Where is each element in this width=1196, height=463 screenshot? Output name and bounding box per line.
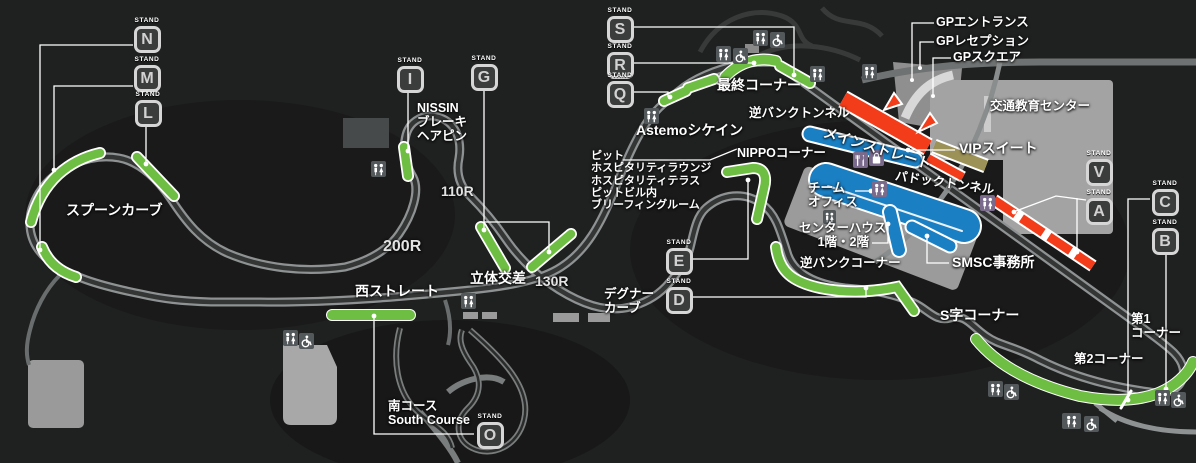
stand-badge-s[interactable]: STANDS [603,7,637,43]
wheelchair-icon [1004,384,1019,400]
toilet-icon [1062,413,1081,429]
toilet-icon [1155,390,1170,406]
building-small-3 [463,312,478,319]
label-traffic-education-center: 交通教育センター [990,99,1090,113]
parking-southwest [28,360,84,428]
label-pit-facilities: ピット ホスピタリティラウンジ ホスピタリティテラス ピットビル内 ブリーフィン… [591,150,711,212]
wheelchair-icon [299,333,314,349]
building-small-1 [553,313,579,322]
building-west [343,118,389,148]
stand-badge-d[interactable]: STANDD [662,278,696,314]
label-s-curves: S字コーナー [940,308,1019,324]
stand-badge-q[interactable]: STANDQ [603,72,637,108]
toilet-icon [980,195,995,211]
label-reverse-bank-corner: 逆バンクコーナー [800,256,901,270]
wheelchair-icon [770,32,785,48]
label-west-straight: 西ストレート [355,284,439,300]
stand-badge-l[interactable]: STANDL [131,91,165,127]
label-110r: 110R [441,184,474,200]
label-gp-entrance: GPエントランス [936,15,1029,29]
stand-badge-m[interactable]: STANDM [130,56,164,92]
label-corner-1: 第1 コーナー [1131,312,1181,340]
toilet-icon [872,181,887,197]
label-gp-square: GPスクエア [953,50,1021,64]
label-team-office: チーム オフィス [808,181,858,209]
suzuka-circuit-map: STANDN STANDM STANDL STANDI STANDG STAND… [0,0,1196,463]
stand-badge-v[interactable]: STANDV [1082,150,1116,186]
toilet-icon [862,64,877,80]
label-200r: 200R [383,238,421,256]
stand-badge-o[interactable]: STANDO [473,413,507,449]
wheelchair-icon [1171,392,1186,408]
stand-badge-i[interactable]: STANDI [393,57,427,93]
label-south-course: 南コース South Course [388,399,470,427]
toilet-icon [753,30,768,46]
label-astemo-chicane: Astemoシケイン [636,123,743,139]
label-spoon-curve: スプーンカーブ [66,203,162,219]
wheelchair-icon [733,48,748,64]
wheelchair-icon [1084,416,1099,432]
toilet-icon [810,66,825,82]
label-degner-curve: デグナー カーブ [604,287,654,315]
label-nippo-corner: NIPPOコーナー [737,146,826,160]
toilet-icon [461,293,476,309]
stand-badge-g[interactable]: STANDG [467,55,501,91]
label-gp-reception: GPレセプション [936,34,1029,48]
label-corner-2: 第2コーナー [1074,352,1143,366]
label-vip-suite: VIPスイート [959,141,1038,157]
parking-south [283,345,337,425]
toilet-icon [716,46,731,62]
stand-badge-e[interactable]: STANDE [662,239,696,275]
toilet-icon [283,330,298,346]
toilet-icon [371,161,386,177]
restaurant-icon [853,152,868,168]
stand-badge-a[interactable]: STANDA [1082,189,1116,225]
stand-badge-c[interactable]: STANDC [1148,180,1182,216]
building-small-4 [482,312,497,319]
toilet-icon [988,381,1003,397]
label-smsc-office: SMSC事務所 [952,255,1034,271]
label-center-house: センターハウス 1階・2階 [799,221,869,249]
label-final-corner: 最終コーナー [717,78,801,94]
stand-badge-n[interactable]: STANDN [130,17,164,53]
label-130r: 130R [535,274,568,290]
label-crossover: 立体交差 [470,271,526,287]
label-reverse-bank-tunnel: 逆バンクトンネル [749,106,849,120]
label-nissin-hairpin: NISSIN ブレーキ ヘアピン [417,101,467,143]
stand-badge-b[interactable]: STANDB [1148,219,1182,255]
